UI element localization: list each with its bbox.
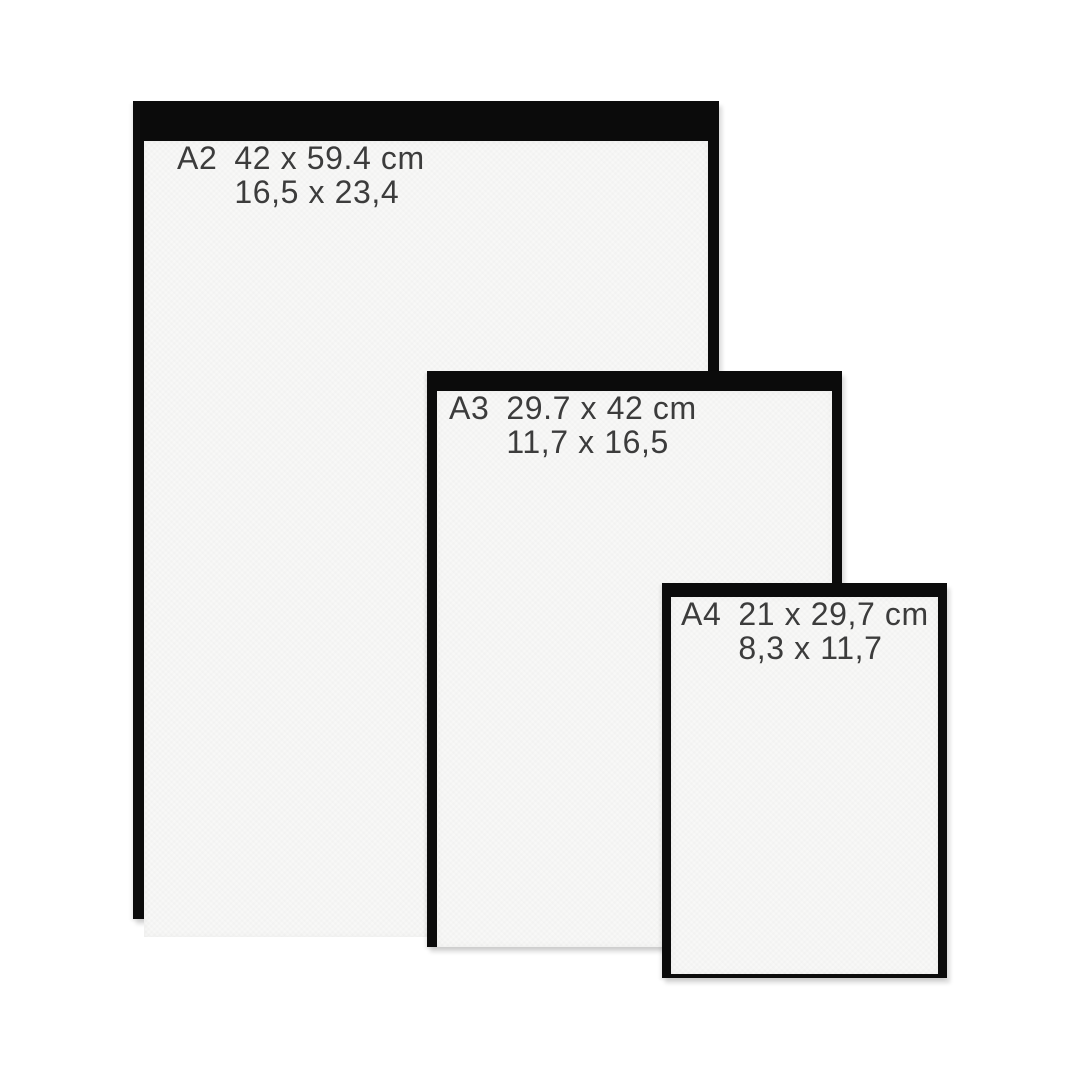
size-label-a4: A4 21 x 29,7 cm 8,3 x 11,7 <box>681 597 938 665</box>
metric-dimensions-a4: 21 x 29,7 cm <box>738 597 928 631</box>
size-label-a2: A2 42 x 59.4 cm 16,5 x 23,4 <box>177 141 708 209</box>
poster-size-guide: A2 42 x 59.4 cm 16,5 x 23,4 A3 29.7 x 42… <box>0 0 1080 1080</box>
dimensions-a3: 29.7 x 42 cm 11,7 x 16,5 <box>506 391 696 459</box>
size-code-a4: A4 <box>681 597 721 631</box>
metric-dimensions-a2: 42 x 59.4 cm <box>234 141 424 175</box>
size-code-a3: A3 <box>449 391 489 425</box>
size-code-a2: A2 <box>177 141 217 175</box>
size-label-a3: A3 29.7 x 42 cm 11,7 x 16,5 <box>449 391 832 459</box>
imperial-dimensions-a3: 11,7 x 16,5 <box>506 425 696 459</box>
imperial-dimensions-a4: 8,3 x 11,7 <box>738 631 928 665</box>
paper-a4: A4 21 x 29,7 cm 8,3 x 11,7 <box>671 597 938 974</box>
frame-a4: A4 21 x 29,7 cm 8,3 x 11,7 <box>662 583 947 978</box>
metric-dimensions-a3: 29.7 x 42 cm <box>506 391 696 425</box>
dimensions-a4: 21 x 29,7 cm 8,3 x 11,7 <box>738 597 928 665</box>
dimensions-a2: 42 x 59.4 cm 16,5 x 23,4 <box>234 141 424 209</box>
imperial-dimensions-a2: 16,5 x 23,4 <box>234 175 424 209</box>
